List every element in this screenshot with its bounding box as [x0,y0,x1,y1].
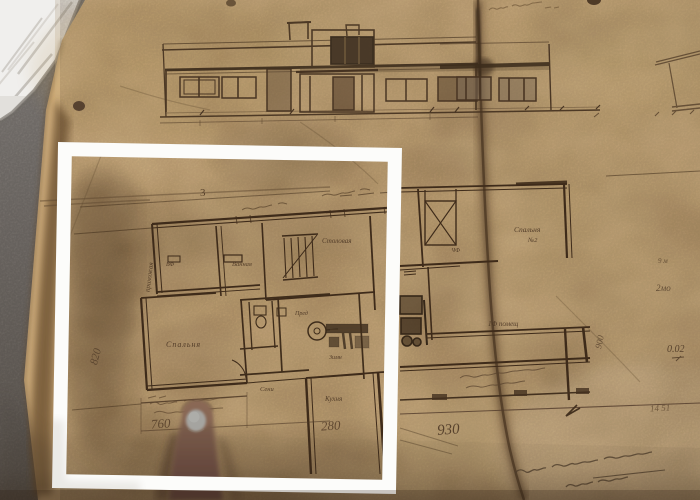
svg-text:№2: №2 [527,237,538,244]
svg-text:Спальня: Спальня [166,340,201,349]
svg-text:3: 3 [200,187,206,199]
svg-text:ВФ: ВФ [166,262,174,268]
svg-text:Спальня: Спальня [514,225,541,234]
svg-text:2мо: 2мо [656,283,671,293]
svg-text:Ванная: Ванная [232,261,252,268]
svg-text:Пред: Пред [294,310,308,317]
svg-text:Зимн: Зимн [329,355,342,361]
svg-text:0.02: 0.02 [667,344,685,355]
svg-text:280: 280 [320,417,341,433]
svg-text:14 51: 14 51 [650,402,671,413]
svg-text:930: 930 [437,421,461,439]
svg-text:9 м: 9 м [658,257,668,265]
svg-text:1Ф помещ: 1Ф помещ [488,320,519,328]
svg-text:760: 760 [150,415,171,431]
svg-text:ЧФ: ЧФ [451,248,460,254]
svg-text:Столовая: Столовая [322,237,352,245]
svg-text:Кухня: Кухня [324,395,342,403]
svg-text:Сени: Сени [260,386,274,393]
